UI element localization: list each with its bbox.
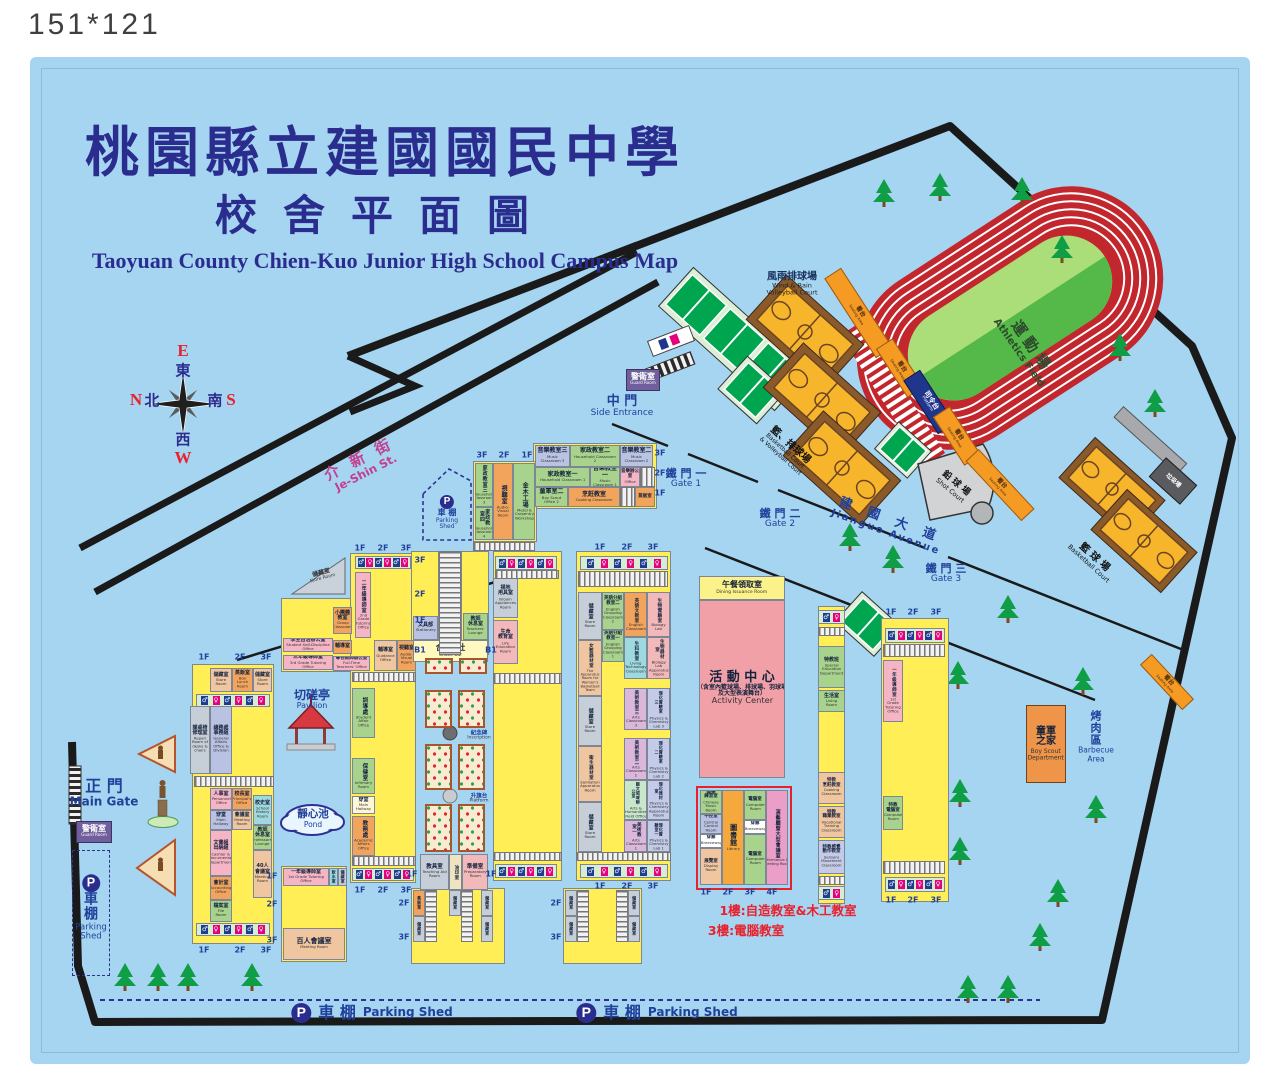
compass-east-zh: 東 bbox=[175, 360, 190, 381]
floor-label: 3F bbox=[744, 888, 755, 897]
floor-label: 1F bbox=[594, 543, 605, 552]
parking-shed-top-label: P車 棚Parking Shed bbox=[436, 495, 458, 531]
title-zh-main: 桃園縣立建國國民中學 bbox=[55, 108, 715, 187]
title-en: Taoyuan County Chien-Kuo Junior High Sch… bbox=[40, 248, 730, 274]
compass-south-en: S bbox=[226, 390, 235, 410]
jianguo-avenue-label: 建 國 大 道Jianguo Avenue bbox=[829, 494, 946, 557]
floor-label: 2F bbox=[266, 900, 277, 909]
compass-west-en: W bbox=[175, 448, 192, 468]
shot-court-label: 鉛 球 場Shot Court bbox=[934, 469, 972, 504]
gate2-label: 鐵 門 二Gate 2 bbox=[760, 508, 801, 530]
floor-label: 3F bbox=[476, 451, 487, 460]
basketball-court-label: 籃 球 場Basketball Court bbox=[1066, 535, 1118, 584]
floor-label: 3F bbox=[930, 608, 941, 617]
wind-rain-court-label: 風雨排球場Wind & RainVolleyball Court bbox=[766, 271, 817, 296]
athletics-field-label: 運 動 場Athletics Field bbox=[991, 307, 1060, 389]
floor-label: 2F bbox=[398, 899, 409, 908]
inscription-label: 紀念碑Inscription bbox=[467, 731, 491, 742]
pavilion-label: 切磋亭Pavilion bbox=[294, 689, 330, 711]
floor-label: 2F bbox=[550, 899, 561, 908]
floor-label: 1F bbox=[414, 616, 425, 625]
compass-west-zh: 西 bbox=[175, 429, 190, 450]
parking-shed-bottom2-label: P車 棚Parking Shed bbox=[576, 1003, 737, 1023]
floor-label: 2F bbox=[234, 653, 245, 662]
store-triangle-label: 儲藏室Store Room bbox=[308, 567, 336, 585]
floor-label: 1F bbox=[406, 870, 417, 879]
floor-label: 2F bbox=[621, 882, 632, 891]
side-entrance-label: 中 門Side Entrance bbox=[591, 395, 654, 419]
floor-label: 1F bbox=[198, 653, 209, 662]
floor-label: 3F bbox=[647, 882, 658, 891]
floor-label: 3F bbox=[260, 946, 271, 955]
floor-label: 2F bbox=[907, 608, 918, 617]
floor-label: 2F bbox=[722, 888, 733, 897]
pond-label: 靜心池Pond bbox=[297, 809, 329, 829]
parking-shed-bottom1-label: P車 棚Parking Shed bbox=[291, 1003, 452, 1023]
floor-label: 3F bbox=[647, 543, 658, 552]
floor-label: 3F bbox=[260, 653, 271, 662]
campus-map-page: 151*121 bbox=[0, 0, 1280, 1072]
floor-label: 2F bbox=[907, 896, 918, 905]
parking-icon: P bbox=[576, 1003, 596, 1023]
barbecue-area-label: 烤 肉 區Barbecue Area bbox=[1078, 711, 1114, 764]
gate1-label: 鐵 門 一Gate 1 bbox=[666, 468, 707, 490]
floor-label: 3F bbox=[414, 556, 425, 565]
compass-north-en: N bbox=[130, 390, 142, 410]
floor-label: 4F bbox=[766, 888, 777, 897]
floor-label: 3F bbox=[266, 936, 277, 945]
floor-label: B1 bbox=[485, 646, 497, 655]
jeshin-street-label: 介 新 街Je-Shin St. bbox=[322, 435, 402, 495]
floor-label: B1 bbox=[414, 646, 426, 655]
floor-label: 1F bbox=[354, 886, 365, 895]
floor-label: 1F bbox=[521, 451, 532, 460]
main-gate-label: 正 門Main Gate bbox=[70, 778, 139, 809]
floor-label: 1F bbox=[485, 870, 496, 879]
floor-label: 1F bbox=[266, 872, 277, 881]
floor-label: 2F bbox=[654, 469, 665, 478]
floor-label: 1F bbox=[594, 882, 605, 891]
floor-label: 2F bbox=[377, 544, 388, 553]
floor-label: 1F bbox=[700, 888, 711, 897]
floor-label: 3F bbox=[930, 896, 941, 905]
compass-north-zh: 北 bbox=[144, 390, 159, 411]
parking-shed-left-outline bbox=[72, 850, 110, 976]
basketball-volleyball-label: 籃、排球場Basketball Court& Volleyball Court bbox=[758, 423, 814, 477]
floor-label: 1F bbox=[885, 608, 896, 617]
floor-label: 1F bbox=[654, 489, 665, 498]
floor-label: 1F bbox=[198, 946, 209, 955]
parking-icon: P bbox=[291, 1003, 311, 1023]
floor-label: 2F bbox=[621, 543, 632, 552]
parking-icon: P bbox=[440, 495, 454, 509]
flag-platform-label: 升旗台Platform bbox=[470, 794, 489, 805]
floor-label: 3F bbox=[398, 933, 409, 942]
gate3-label: 鐵 門 三Gate 3 bbox=[926, 563, 967, 585]
floor-label: 2F bbox=[377, 886, 388, 895]
floor-label: 2F bbox=[414, 590, 425, 599]
compass-south-zh: 南 bbox=[207, 390, 222, 411]
note-1f-label: 1樓:自造教室&木工教室 bbox=[719, 904, 856, 918]
floor-label: 3F bbox=[400, 544, 411, 553]
floor-label: 2F bbox=[234, 946, 245, 955]
floor-label: 3F bbox=[654, 449, 665, 458]
floor-label: 2F bbox=[498, 451, 509, 460]
title-zh-sub: 校舍平面圖 bbox=[55, 182, 715, 243]
floor-label: 3F bbox=[550, 933, 561, 942]
note-3f-label: 3樓:電腦教室 bbox=[708, 924, 784, 938]
floor-label: 3F bbox=[400, 886, 411, 895]
floor-label: 1F bbox=[354, 544, 365, 553]
compass-east-en: E bbox=[177, 341, 188, 361]
floor-label: 1F bbox=[885, 896, 896, 905]
